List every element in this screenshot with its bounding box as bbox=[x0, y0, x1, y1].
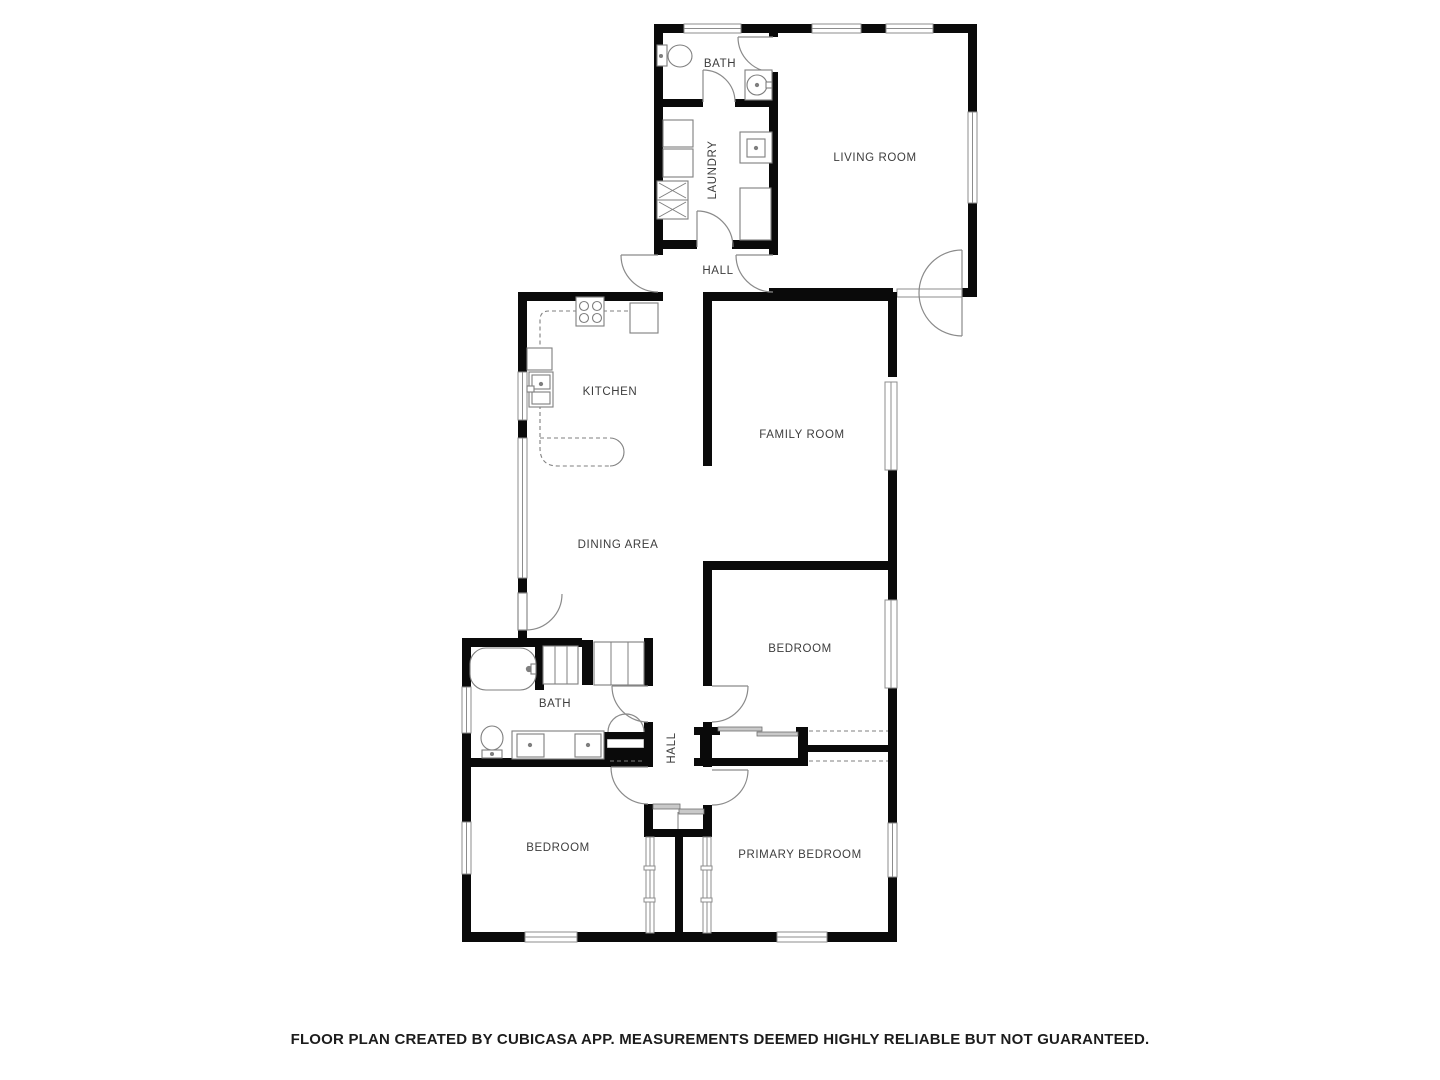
wall bbox=[888, 688, 897, 823]
door-hall-laundry-swing bbox=[697, 211, 733, 247]
kitchen-counter bbox=[527, 348, 552, 370]
wall bbox=[808, 745, 897, 752]
wall bbox=[703, 292, 893, 301]
door-living-bath-swing bbox=[738, 37, 773, 72]
floorplan-canvas: BATHLAUNDRYLIVING ROOMHALLKITCHENFAMILY … bbox=[0, 0, 1440, 1080]
door-bedroom-right-swing bbox=[712, 686, 748, 722]
room-label-bath-upper: BATH bbox=[704, 58, 736, 70]
room-label-dining-area: DINING AREA bbox=[578, 539, 659, 551]
sliding-door bbox=[757, 732, 798, 736]
wall bbox=[598, 748, 653, 758]
door-hall-exterior-swing bbox=[621, 255, 658, 292]
door-dining-exterior-swing bbox=[526, 594, 562, 630]
wall bbox=[968, 24, 977, 112]
wall bbox=[518, 292, 527, 372]
wall bbox=[462, 874, 471, 932]
wall bbox=[968, 203, 977, 288]
toilet-lower bbox=[491, 753, 494, 756]
kitchen-sink bbox=[527, 386, 534, 392]
wall bbox=[598, 732, 653, 739]
sliding-door bbox=[679, 809, 704, 814]
laundry-tall-cabinet bbox=[740, 188, 771, 240]
disclaimer-text: FLOOR PLAN CREATED BY CUBICASA APP. MEAS… bbox=[0, 1031, 1440, 1048]
sliding-door bbox=[718, 727, 762, 731]
wall bbox=[769, 24, 778, 37]
room-label-living-room: LIVING ROOM bbox=[833, 152, 916, 164]
wall bbox=[861, 24, 886, 33]
counter-edge bbox=[610, 438, 624, 466]
wall bbox=[962, 288, 977, 297]
window-tick bbox=[644, 866, 655, 870]
wall bbox=[700, 727, 708, 766]
toilet-lower bbox=[481, 726, 503, 750]
dashed-line bbox=[540, 311, 577, 348]
stove bbox=[580, 314, 589, 323]
door-panel bbox=[518, 593, 527, 630]
room-label-bedroom-right: BEDROOM bbox=[768, 643, 832, 655]
room-label-bath-lower: BATH bbox=[539, 698, 571, 710]
kitchen-sink bbox=[532, 392, 550, 404]
sliding-door bbox=[653, 804, 680, 809]
wall bbox=[888, 470, 897, 570]
floorplan-page: BATHLAUNDRYLIVING ROOMHALLKITCHENFAMILY … bbox=[0, 0, 1440, 1080]
toilet-upper bbox=[668, 45, 692, 67]
bathtub bbox=[531, 664, 536, 674]
room-label-bedroom-left: BEDROOM bbox=[526, 842, 590, 854]
wall bbox=[694, 758, 808, 766]
wall bbox=[462, 932, 525, 942]
laundry-cabinet-1 bbox=[663, 120, 693, 147]
laundry-sink bbox=[754, 146, 757, 149]
door-bedroom-left-swing bbox=[611, 767, 648, 804]
linen-closet bbox=[543, 646, 578, 684]
wall bbox=[675, 837, 683, 935]
wall bbox=[644, 638, 653, 686]
window-tick bbox=[701, 866, 712, 870]
laundry-cabinet-2 bbox=[663, 149, 693, 177]
stove bbox=[593, 314, 602, 323]
wall bbox=[888, 570, 897, 600]
door-living-double-swing bbox=[919, 250, 962, 293]
room-label-family-room: FAMILY ROOM bbox=[759, 429, 844, 441]
bifold-closet-door-swing bbox=[608, 714, 626, 732]
stove bbox=[593, 302, 602, 311]
wall bbox=[654, 99, 703, 107]
wall bbox=[703, 292, 712, 466]
refrigerator bbox=[630, 303, 658, 333]
stove bbox=[580, 302, 589, 311]
room-label-hall-lower: HALL bbox=[666, 732, 678, 763]
wall bbox=[827, 932, 897, 942]
wall bbox=[582, 640, 593, 685]
wall bbox=[644, 722, 653, 767]
room-label-kitchen: KITCHEN bbox=[583, 386, 638, 398]
door-laundry-bath-swing bbox=[703, 70, 735, 102]
wall bbox=[732, 240, 778, 249]
window-tick bbox=[644, 898, 655, 902]
dining-closet bbox=[594, 642, 644, 685]
wall bbox=[518, 578, 527, 593]
dashed-line bbox=[540, 405, 610, 466]
wall bbox=[798, 727, 808, 766]
door-living-double-swing bbox=[919, 293, 962, 336]
wall bbox=[888, 877, 897, 932]
vanity-double-sink bbox=[586, 743, 589, 746]
floorplan-svg: BATHLAUNDRYLIVING ROOMHALLKITCHENFAMILY … bbox=[0, 0, 1440, 1080]
wall bbox=[654, 240, 697, 249]
vanity-double-sink bbox=[528, 743, 531, 746]
wall bbox=[703, 561, 712, 686]
wall-opening bbox=[897, 289, 962, 297]
wall-opening bbox=[607, 739, 644, 748]
wall bbox=[703, 561, 897, 570]
room-label-hall-upper: HALL bbox=[702, 265, 733, 277]
wall bbox=[888, 292, 897, 377]
wall bbox=[645, 829, 712, 837]
room-label-primary-bedroom: PRIMARY BEDROOM bbox=[738, 849, 862, 861]
toilet-upper bbox=[660, 55, 663, 58]
room-label-laundry: LAUNDRY bbox=[707, 141, 719, 200]
window-tick bbox=[701, 898, 712, 902]
wall bbox=[518, 420, 527, 438]
sink-upper-bath bbox=[755, 83, 758, 86]
door-hall-living-swing bbox=[736, 255, 773, 292]
door-primary-bedroom-swing bbox=[712, 770, 748, 805]
sink-upper-bath bbox=[766, 82, 772, 88]
wall bbox=[462, 733, 471, 822]
wall bbox=[577, 932, 777, 942]
kitchen-sink bbox=[539, 382, 542, 385]
